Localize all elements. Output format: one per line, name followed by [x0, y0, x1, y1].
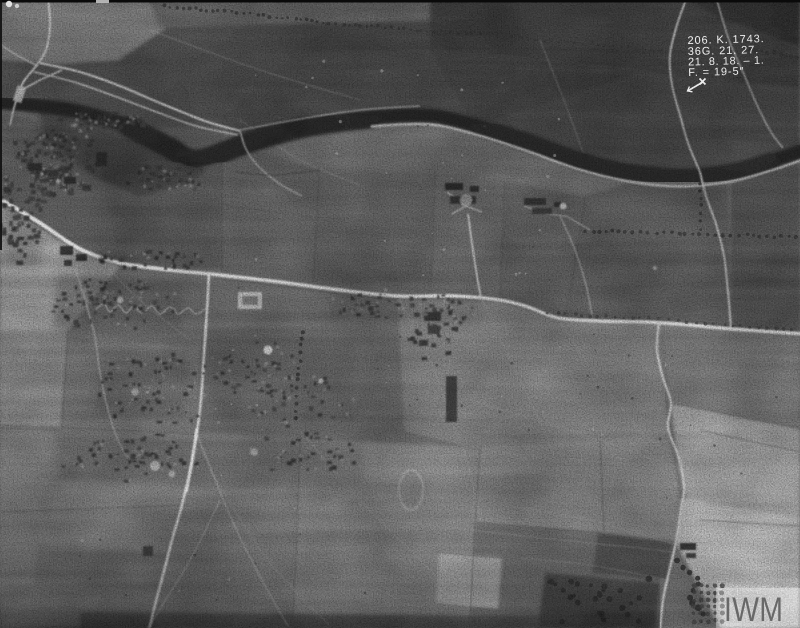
- svg-text:IWM: IWM: [724, 589, 783, 628]
- svg-text:F. = 19-5″: F. = 19-5″: [688, 66, 744, 79]
